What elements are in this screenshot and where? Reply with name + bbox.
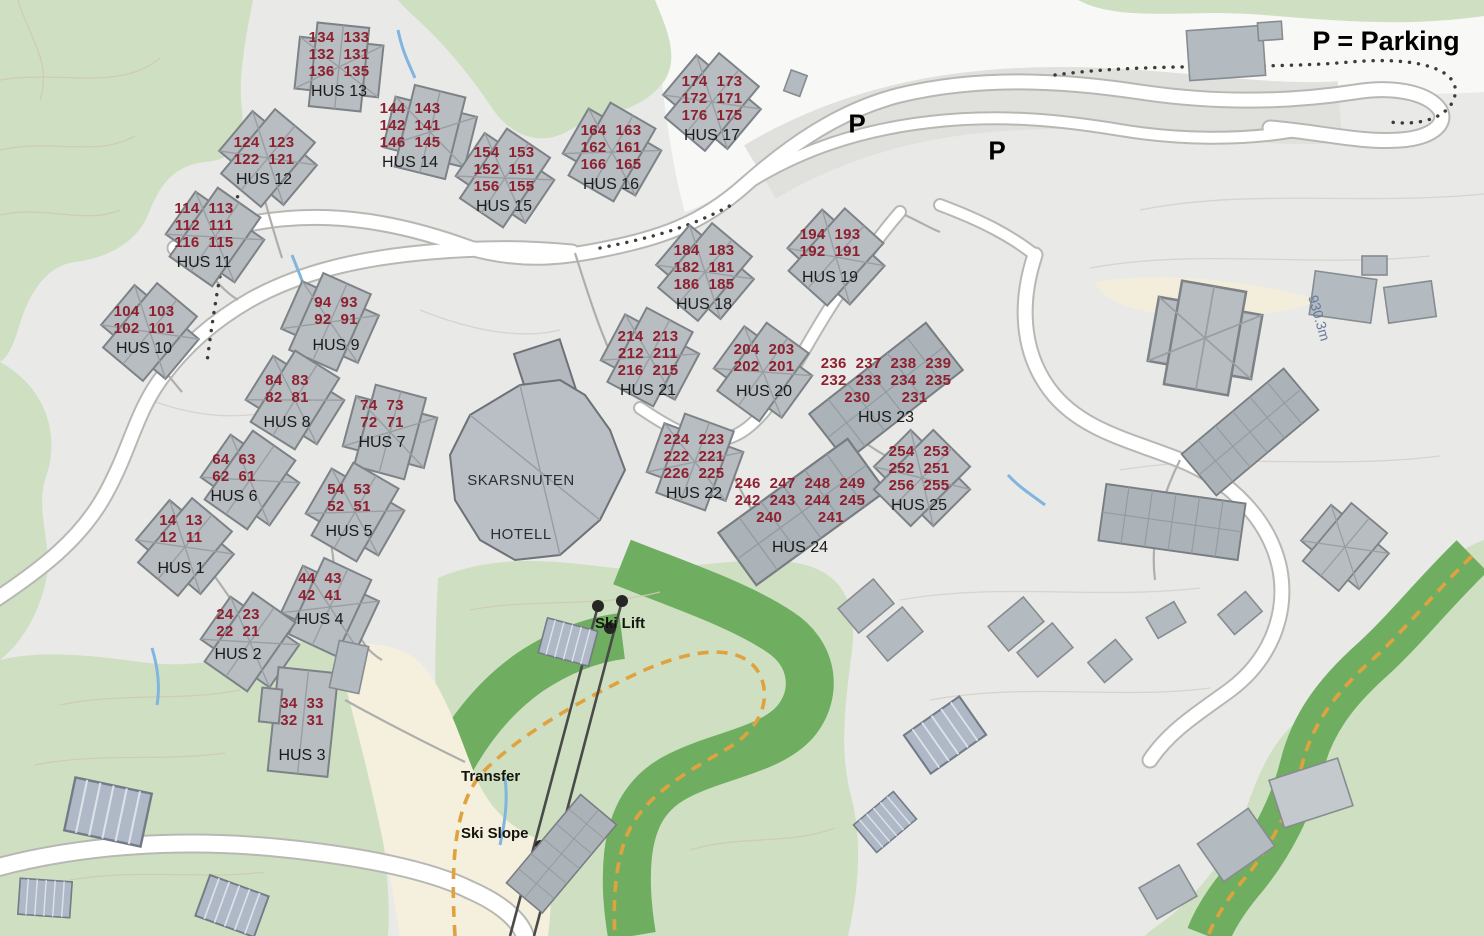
house-cluster-hus-15: 154 153 152 151 156 155HUS 15 — [474, 144, 535, 215]
house-cluster-hus-1: 14 13 12 11HUS 1 — [157, 512, 204, 577]
house-name: HUS 7 — [358, 434, 405, 451]
unit-numbers: 144 143 142 141 146 145 — [380, 100, 441, 151]
ski-lift-label: Ski Lift — [595, 614, 645, 633]
house-cluster-hus-21: 214 213 212 211 216 215HUS 21 — [618, 328, 679, 399]
house-name: HUS 25 — [889, 497, 950, 514]
parking-legend: P = Parking — [1312, 26, 1459, 57]
parking-marker-1: P — [848, 109, 865, 140]
house-cluster-hus-25: 254 253 252 251 256 255HUS 25 — [889, 443, 950, 514]
house-name: HUS 1 — [157, 560, 204, 577]
house-name: HUS 23 — [821, 409, 952, 426]
house-cluster-hus-19: 194 193 192 191HUS 19 — [800, 226, 861, 286]
house-name: HUS 5 — [325, 523, 372, 540]
unit-numbers: 254 253 252 251 256 255 — [889, 443, 950, 494]
house-cluster-hus-10: 104 103 102 101HUS 10 — [114, 303, 175, 357]
hotel-name-line1: SKARSNUTEN — [467, 472, 575, 490]
house-name: HUS 8 — [263, 414, 310, 431]
transfer-line1: Transfer — [461, 767, 529, 786]
house-cluster-hus-14: 144 143 142 141 146 145HUS 14 — [380, 100, 441, 171]
house-name: HUS 19 — [800, 269, 861, 286]
house-cluster-hus-6: 64 63 62 61HUS 6 — [210, 451, 257, 505]
house-cluster-hus-3: 34 33 32 31HUS 3 — [278, 695, 325, 764]
resort-map: P = Parking SKARSNUTEN HOTELL Ski Lift T… — [0, 0, 1484, 936]
house-cluster-hus-11: 114 113 112 111 116 115HUS 11 — [174, 200, 233, 271]
house-name: HUS 2 — [214, 646, 261, 663]
house-cluster-hus-16: 164 163 162 161 166 165HUS 16 — [581, 122, 642, 193]
house-name: HUS 12 — [234, 171, 295, 188]
house-name: HUS 14 — [380, 154, 441, 171]
house-cluster-hus-24: 246 247 248 249 242 243 244 245 240 241H… — [735, 475, 866, 556]
house-cluster-hus-12: 124 123 122 121HUS 12 — [234, 134, 295, 188]
house-name: HUS 16 — [581, 176, 642, 193]
house-cluster-hus-2: 24 23 22 21HUS 2 — [214, 606, 261, 663]
house-name: HUS 24 — [735, 539, 866, 556]
house-name: HUS 18 — [674, 296, 735, 313]
unit-numbers: 34 33 32 31 — [278, 695, 325, 729]
map-labels: P = Parking SKARSNUTEN HOTELL Ski Lift T… — [0, 0, 1484, 936]
house-name: HUS 10 — [114, 340, 175, 357]
house-name: HUS 22 — [664, 485, 725, 502]
house-name: HUS 17 — [682, 127, 743, 144]
house-cluster-hus-13: 134 133 132 131 136 135HUS 13 — [309, 29, 370, 100]
house-cluster-hus-4: 44 43 42 41HUS 4 — [296, 570, 343, 628]
house-cluster-hus-20: 204 203 202 201HUS 20 — [734, 341, 795, 400]
house-name: HUS 6 — [210, 488, 257, 505]
house-name: HUS 9 — [312, 337, 359, 354]
house-name: HUS 20 — [734, 383, 795, 400]
unit-numbers: 14 13 12 11 — [157, 512, 204, 546]
unit-numbers: 64 63 62 61 — [210, 451, 257, 485]
house-name: HUS 3 — [278, 747, 325, 764]
house-name: HUS 11 — [174, 254, 233, 271]
parking-marker-2: P — [988, 136, 1005, 167]
transfer-ski-slope-label: Transfer Ski Slope — [461, 729, 529, 881]
unit-numbers: 236 237 238 239 232 233 234 235 230 231 — [821, 355, 952, 406]
unit-numbers: 44 43 42 41 — [296, 570, 343, 604]
unit-numbers: 246 247 248 249 242 243 244 245 240 241 — [735, 475, 866, 526]
house-name: HUS 21 — [618, 382, 679, 399]
unit-numbers: 134 133 132 131 136 135 — [309, 29, 370, 80]
unit-numbers: 164 163 162 161 166 165 — [581, 122, 642, 173]
unit-numbers: 94 93 92 91 — [312, 294, 359, 328]
transfer-line2: Ski Slope — [461, 824, 529, 843]
house-cluster-hus-7: 74 73 72 71HUS 7 — [358, 397, 405, 451]
elevation-label: 930.3m — [1305, 293, 1333, 342]
unit-numbers: 74 73 72 71 — [358, 397, 405, 431]
unit-numbers: 114 113 112 111 116 115 — [174, 200, 233, 251]
house-cluster-hus-23: 236 237 238 239 232 233 234 235 230 231H… — [821, 355, 952, 426]
unit-numbers: 124 123 122 121 — [234, 134, 295, 168]
house-cluster-hus-5: 54 53 52 51HUS 5 — [325, 481, 372, 540]
house-cluster-hus-9: 94 93 92 91HUS 9 — [312, 294, 359, 354]
house-name: HUS 15 — [474, 198, 535, 215]
house-cluster-hus-22: 224 223 222 221 226 225HUS 22 — [664, 431, 725, 502]
unit-numbers: 174 173 172 171 176 175 — [682, 73, 743, 124]
house-name: HUS 13 — [309, 83, 370, 100]
hotel-name-line2: HOTELL — [467, 526, 575, 544]
unit-numbers: 184 183 182 181 186 185 — [674, 242, 735, 293]
unit-numbers: 104 103 102 101 — [114, 303, 175, 337]
house-name: HUS 4 — [296, 611, 343, 628]
house-cluster-hus-8: 84 83 82 81HUS 8 — [263, 372, 310, 431]
hotel-label: SKARSNUTEN HOTELL — [467, 436, 575, 580]
house-cluster-hus-17: 174 173 172 171 176 175HUS 17 — [682, 73, 743, 144]
unit-numbers: 194 193 192 191 — [800, 226, 861, 260]
unit-numbers: 84 83 82 81 — [263, 372, 310, 406]
unit-numbers: 204 203 202 201 — [734, 341, 795, 375]
unit-numbers: 224 223 222 221 226 225 — [664, 431, 725, 482]
unit-numbers: 154 153 152 151 156 155 — [474, 144, 535, 195]
unit-numbers: 24 23 22 21 — [214, 606, 261, 640]
unit-numbers: 214 213 212 211 216 215 — [618, 328, 679, 379]
house-cluster-hus-18: 184 183 182 181 186 185HUS 18 — [674, 242, 735, 313]
unit-numbers: 54 53 52 51 — [325, 481, 372, 515]
